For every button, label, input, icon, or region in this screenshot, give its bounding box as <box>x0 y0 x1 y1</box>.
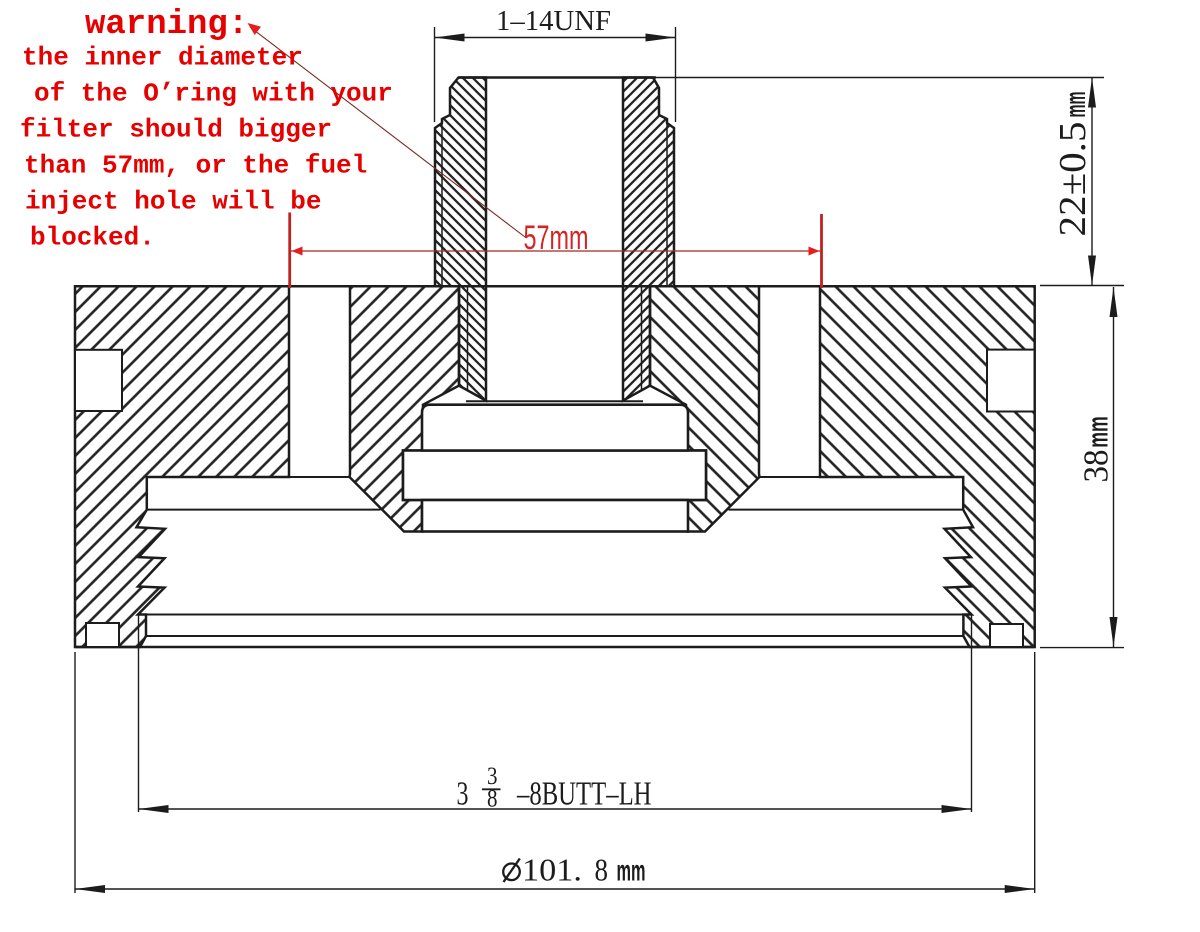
svg-text:22±0.5: 22±0.5 <box>1052 122 1094 237</box>
svg-text:mm: mm <box>1083 416 1115 448</box>
svg-text:8: 8 <box>487 786 498 813</box>
svg-text:57mm: 57mm <box>524 219 589 257</box>
svg-text:blocked.: blocked. <box>30 223 155 253</box>
svg-text:3: 3 <box>457 776 469 813</box>
svg-text:of the O’ring with your: of the O’ring with your <box>34 79 393 109</box>
svg-text:38: 38 <box>1077 450 1116 483</box>
svg-text:101.: 101. <box>522 852 582 888</box>
svg-text:than 57mm, or the fuel: than 57mm, or the fuel <box>24 151 367 181</box>
svg-text:mm: mm <box>617 855 646 888</box>
svg-text:the inner diameter: the inner diameter <box>22 43 303 73</box>
svg-text:–8BUTT–LH: –8BUTT–LH <box>516 776 651 813</box>
svg-text:warning:: warning: <box>85 6 248 44</box>
svg-text:8: 8 <box>595 852 609 888</box>
svg-text:inject hole will be: inject hole will be <box>25 187 321 217</box>
svg-text:1–14UNF: 1–14UNF <box>496 5 611 37</box>
svg-text:mm: mm <box>1060 92 1092 118</box>
svg-text:filter should bigger: filter should bigger <box>20 115 332 145</box>
